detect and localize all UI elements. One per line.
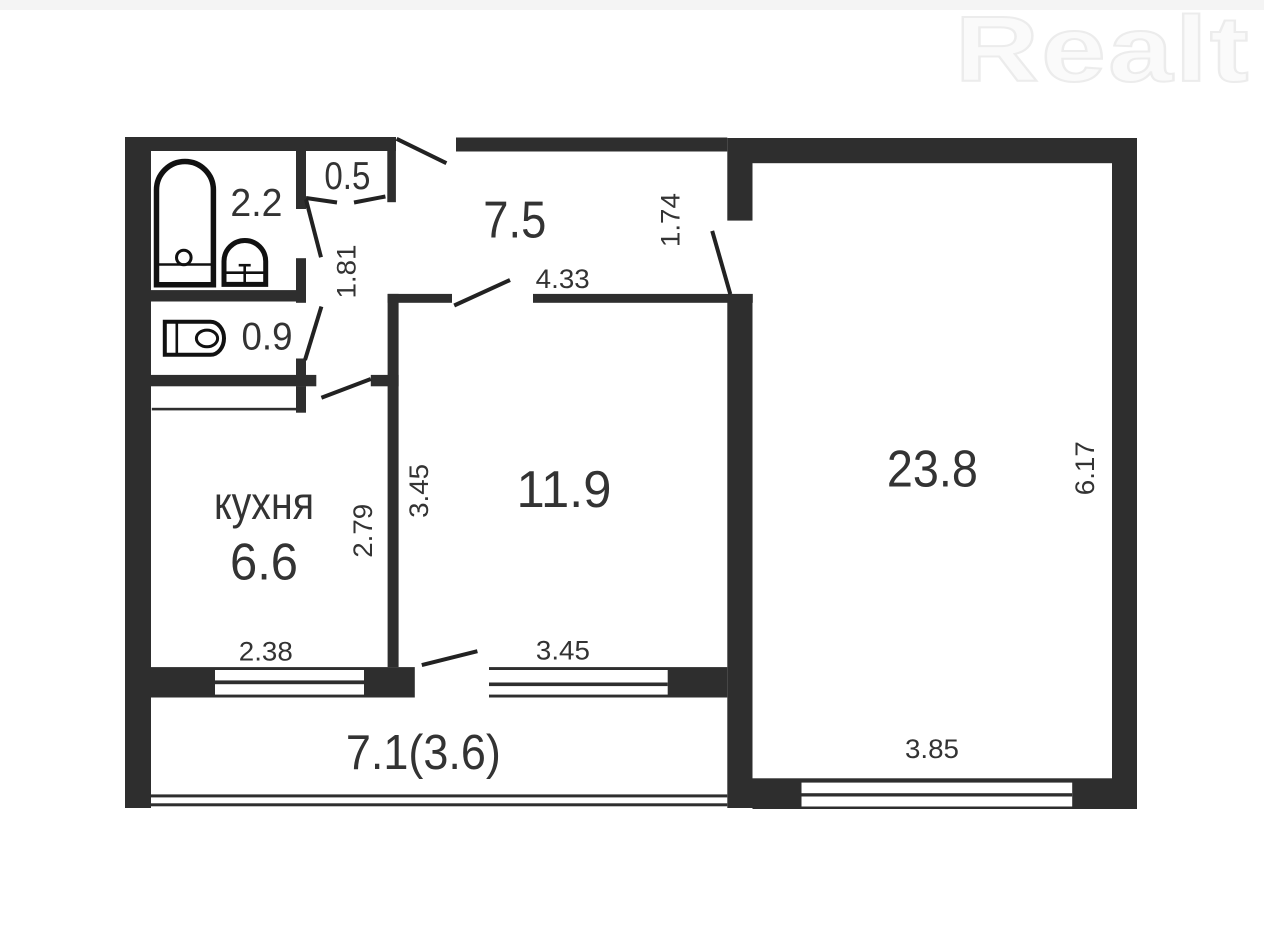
svg-text:0.9: 0.9: [242, 316, 293, 359]
svg-text:4.33: 4.33: [536, 264, 590, 294]
svg-text:Realt: Realt: [955, 0, 1251, 101]
svg-text:2.2: 2.2: [230, 182, 282, 225]
svg-text:11.9: 11.9: [517, 461, 612, 519]
svg-text:3.85: 3.85: [905, 734, 959, 764]
svg-text:2.38: 2.38: [239, 637, 293, 667]
svg-text:3.45: 3.45: [404, 464, 434, 518]
svg-text:1.74: 1.74: [655, 193, 685, 247]
svg-text:7.5: 7.5: [483, 191, 546, 249]
svg-text:0.5: 0.5: [324, 155, 370, 198]
svg-text:2.79: 2.79: [348, 504, 378, 558]
svg-text:3.45: 3.45: [536, 636, 590, 666]
svg-text:6.17: 6.17: [1070, 441, 1100, 495]
svg-text:кухня: кухня: [214, 477, 314, 529]
svg-text:6.6: 6.6: [230, 534, 298, 592]
svg-text:1.81: 1.81: [332, 245, 362, 299]
svg-text:23.8: 23.8: [887, 440, 978, 498]
svg-text:7.1(3.6): 7.1(3.6): [346, 726, 501, 780]
